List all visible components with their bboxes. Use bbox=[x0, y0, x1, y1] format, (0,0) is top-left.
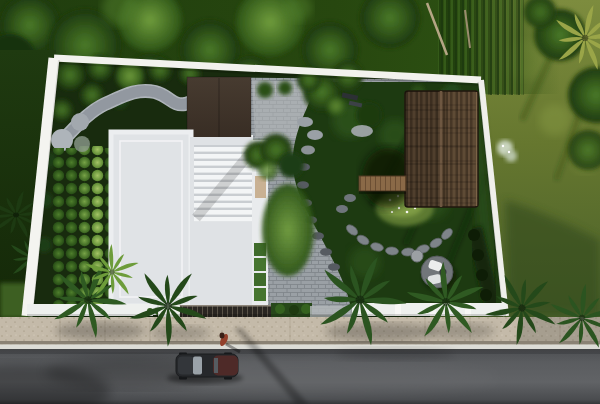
car-windshield bbox=[193, 357, 202, 375]
curb bbox=[0, 345, 600, 350]
car-hood bbox=[178, 357, 194, 375]
carport-roof bbox=[187, 77, 251, 138]
planter-box bbox=[254, 273, 266, 286]
site-render bbox=[0, 0, 600, 404]
ottoman bbox=[411, 250, 423, 262]
lawn-bulge bbox=[262, 184, 314, 276]
car-rear-window bbox=[214, 358, 218, 373]
aerial-scene bbox=[0, 0, 600, 404]
street bbox=[0, 317, 600, 404]
gravel-patch bbox=[351, 125, 373, 137]
house-right-wing-roof bbox=[190, 137, 253, 315]
car bbox=[167, 353, 243, 385]
planter-box bbox=[254, 288, 266, 301]
thatched-pavilion-roof bbox=[405, 91, 478, 207]
planter-box bbox=[254, 258, 266, 271]
house-main-roof bbox=[111, 132, 191, 306]
gutter-line bbox=[0, 341, 600, 345]
timber-deck bbox=[359, 176, 406, 194]
